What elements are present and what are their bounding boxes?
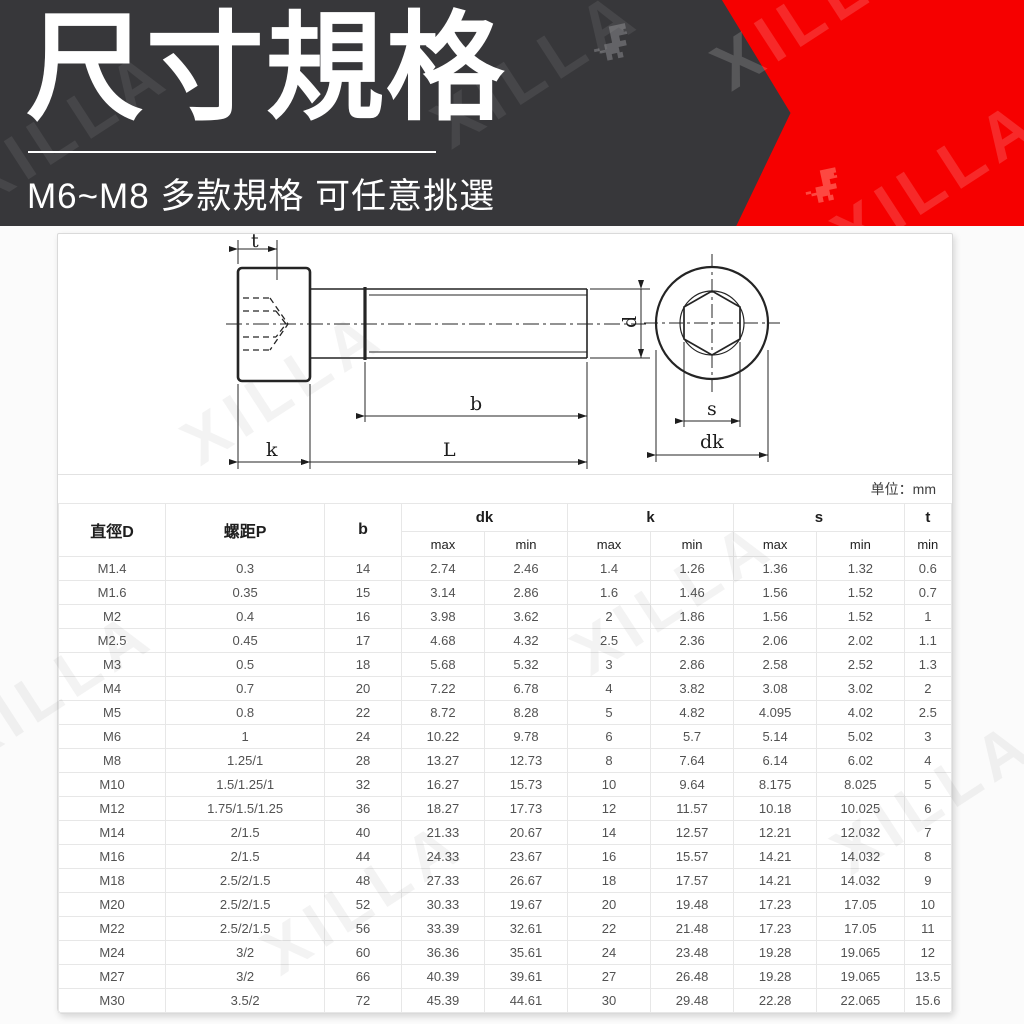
table-row: M20.4163.983.6221.861.561.521 bbox=[59, 605, 952, 629]
table-cell: 14.032 bbox=[817, 845, 905, 869]
table-cell: M1.6 bbox=[59, 581, 166, 605]
table-row: M162/1.54424.3323.671615.5714.2114.0328 bbox=[59, 845, 952, 869]
table-row: M81.25/12813.2712.7387.646.146.024 bbox=[59, 749, 952, 773]
table-row: M1.60.35153.142.861.61.461.561.520.7 bbox=[59, 581, 952, 605]
table-cell: 6.78 bbox=[484, 677, 567, 701]
table-cell: 33.39 bbox=[401, 917, 484, 941]
table-cell: 29.48 bbox=[651, 989, 734, 1013]
table-cell: 13.27 bbox=[401, 749, 484, 773]
table-cell: M3 bbox=[59, 653, 166, 677]
dino-logo-icon bbox=[584, 20, 636, 72]
subheader-t-min: min bbox=[904, 532, 951, 557]
table-cell: 66 bbox=[325, 965, 402, 989]
table-cell: 4.095 bbox=[734, 701, 817, 725]
table-cell: 1.52 bbox=[817, 581, 905, 605]
table-cell: 1.56 bbox=[734, 581, 817, 605]
table-cell: 4 bbox=[904, 749, 951, 773]
table-cell: M5 bbox=[59, 701, 166, 725]
table-cell: 48 bbox=[325, 869, 402, 893]
table-cell: 35.61 bbox=[484, 941, 567, 965]
table-cell: M14 bbox=[59, 821, 166, 845]
table-cell: 3/2 bbox=[166, 941, 325, 965]
table-cell: 5 bbox=[568, 701, 651, 725]
table-cell: 17 bbox=[325, 629, 402, 653]
table-cell: 2.86 bbox=[484, 581, 567, 605]
table-cell: 2/1.5 bbox=[166, 845, 325, 869]
table-cell: 8.72 bbox=[401, 701, 484, 725]
table-cell: 18 bbox=[568, 869, 651, 893]
table-cell: M24 bbox=[59, 941, 166, 965]
table-cell: 4.82 bbox=[651, 701, 734, 725]
label-t: t bbox=[251, 234, 259, 252]
table-cell: 1.36 bbox=[734, 557, 817, 581]
col-header-s: s bbox=[734, 504, 905, 532]
table-cell: 1.75/1.5/1.25 bbox=[166, 797, 325, 821]
table-cell: 44 bbox=[325, 845, 402, 869]
table-cell: 5 bbox=[904, 773, 951, 797]
table-cell: 9.64 bbox=[651, 773, 734, 797]
table-cell: 8.025 bbox=[817, 773, 905, 797]
screw-drawing-svg: t d b k L s dk bbox=[58, 234, 952, 474]
table-cell: 12 bbox=[904, 941, 951, 965]
subheader-k-min: min bbox=[651, 532, 734, 557]
table-cell: 15.73 bbox=[484, 773, 567, 797]
table-cell: 3.82 bbox=[651, 677, 734, 701]
table-row: M30.5185.685.3232.862.582.521.3 bbox=[59, 653, 952, 677]
table-cell: M4 bbox=[59, 677, 166, 701]
table-cell: 24.33 bbox=[401, 845, 484, 869]
table-cell: 20.67 bbox=[484, 821, 567, 845]
table-cell: 0.3 bbox=[166, 557, 325, 581]
table-cell: M20 bbox=[59, 893, 166, 917]
table-cell: 0.7 bbox=[904, 581, 951, 605]
table-row: M222.5/2/1.55633.3932.612221.4817.2317.0… bbox=[59, 917, 952, 941]
table-cell: 10.18 bbox=[734, 797, 817, 821]
page-title: 尺寸規格 bbox=[26, 0, 506, 144]
table-cell: 5.14 bbox=[734, 725, 817, 749]
table-cell: 4.68 bbox=[401, 629, 484, 653]
table-cell: 18 bbox=[325, 653, 402, 677]
table-cell: 3.5/2 bbox=[166, 989, 325, 1013]
label-k: k bbox=[266, 439, 278, 461]
dim-b bbox=[365, 362, 587, 469]
table-cell: 7 bbox=[904, 821, 951, 845]
table-row: M50.8228.728.2854.824.0954.022.5 bbox=[59, 701, 952, 725]
subheader-s-min: min bbox=[817, 532, 905, 557]
table-cell: 56 bbox=[325, 917, 402, 941]
table-cell: 15.57 bbox=[651, 845, 734, 869]
subheader-k-max: max bbox=[568, 532, 651, 557]
technical-drawing: t d b k L s dk bbox=[58, 234, 952, 474]
table-row: M101.5/1.25/13216.2715.73109.648.1758.02… bbox=[59, 773, 952, 797]
table-cell: M27 bbox=[59, 965, 166, 989]
table-cell: 72 bbox=[325, 989, 402, 1013]
unit-row: 单位：mm bbox=[58, 474, 952, 503]
title-underline bbox=[28, 151, 436, 153]
table-cell: 6 bbox=[904, 797, 951, 821]
table-cell: M6 bbox=[59, 725, 166, 749]
table-cell: 12.57 bbox=[651, 821, 734, 845]
table-cell: 15.6 bbox=[904, 989, 951, 1013]
table-cell: 6.02 bbox=[817, 749, 905, 773]
col-header-diameter: 直徑D bbox=[59, 504, 166, 557]
table-cell: 12.032 bbox=[817, 821, 905, 845]
table-cell: 23.67 bbox=[484, 845, 567, 869]
table-cell: 18.27 bbox=[401, 797, 484, 821]
spec-table: 直徑D 螺距P b dk k s t max min max min max m… bbox=[58, 503, 952, 1013]
table-cell: 17.23 bbox=[734, 917, 817, 941]
table-cell: 4 bbox=[568, 677, 651, 701]
table-cell: 0.5 bbox=[166, 653, 325, 677]
label-b: b bbox=[470, 393, 482, 415]
table-cell: 23.48 bbox=[651, 941, 734, 965]
table-cell: 2 bbox=[568, 605, 651, 629]
table-row: M273/26640.3939.612726.4819.2819.06513.5 bbox=[59, 965, 952, 989]
table-cell: M16 bbox=[59, 845, 166, 869]
table-cell: 6.14 bbox=[734, 749, 817, 773]
table-cell: M8 bbox=[59, 749, 166, 773]
table-cell: 1.1 bbox=[904, 629, 951, 653]
table-cell: 2.02 bbox=[817, 629, 905, 653]
table-cell: 28 bbox=[325, 749, 402, 773]
table-cell: 52 bbox=[325, 893, 402, 917]
table-cell: 2.36 bbox=[651, 629, 734, 653]
table-cell: 20 bbox=[568, 893, 651, 917]
table-cell: 1.3 bbox=[904, 653, 951, 677]
table-cell: 22 bbox=[325, 701, 402, 725]
table-cell: 1.86 bbox=[651, 605, 734, 629]
table-cell: 0.45 bbox=[166, 629, 325, 653]
table-cell: 21.33 bbox=[401, 821, 484, 845]
table-cell: 2.74 bbox=[401, 557, 484, 581]
table-cell: 17.05 bbox=[817, 893, 905, 917]
table-cell: 22.28 bbox=[734, 989, 817, 1013]
table-cell: 16 bbox=[325, 605, 402, 629]
table-cell: 3.02 bbox=[817, 677, 905, 701]
col-header-b: b bbox=[325, 504, 402, 557]
label-L: L bbox=[443, 439, 456, 461]
spec-table-header: 直徑D 螺距P b dk k s t max min max min max m… bbox=[59, 504, 952, 557]
table-cell: 11.57 bbox=[651, 797, 734, 821]
table-cell: 3.14 bbox=[401, 581, 484, 605]
table-row: M303.5/27245.3944.613029.4822.2822.06515… bbox=[59, 989, 952, 1013]
table-cell: 1.32 bbox=[817, 557, 905, 581]
table-cell: 14 bbox=[568, 821, 651, 845]
table-cell: 1.46 bbox=[651, 581, 734, 605]
page: XILLA XILLA XILLA XILLA 尺寸規格 M6~M8 多款規格 … bbox=[0, 0, 1024, 1024]
table-row: M202.5/2/1.55230.3319.672019.4817.2317.0… bbox=[59, 893, 952, 917]
table-cell: 19.28 bbox=[734, 965, 817, 989]
table-cell: 12.73 bbox=[484, 749, 567, 773]
table-cell: 0.6 bbox=[904, 557, 951, 581]
table-cell: 12 bbox=[568, 797, 651, 821]
table-cell: 0.35 bbox=[166, 581, 325, 605]
table-cell: 3.08 bbox=[734, 677, 817, 701]
table-row: M2.50.45174.684.322.52.362.062.021.1 bbox=[59, 629, 952, 653]
table-cell: 9.78 bbox=[484, 725, 567, 749]
table-cell: 8 bbox=[568, 749, 651, 773]
table-cell: 1.52 bbox=[817, 605, 905, 629]
table-row: M243/26036.3635.612423.4819.2819.06512 bbox=[59, 941, 952, 965]
table-cell: 5.7 bbox=[651, 725, 734, 749]
table-cell: 4.02 bbox=[817, 701, 905, 725]
table-cell: 3.62 bbox=[484, 605, 567, 629]
table-cell: 2.06 bbox=[734, 629, 817, 653]
dim-k-L bbox=[238, 384, 587, 469]
table-cell: 10 bbox=[904, 893, 951, 917]
table-cell: 14.21 bbox=[734, 845, 817, 869]
table-cell: 19.065 bbox=[817, 941, 905, 965]
table-cell: 2.5 bbox=[904, 701, 951, 725]
table-cell: 2.5/2/1.5 bbox=[166, 917, 325, 941]
table-cell: 40 bbox=[325, 821, 402, 845]
table-cell: 45.39 bbox=[401, 989, 484, 1013]
table-row: M40.7207.226.7843.823.083.022 bbox=[59, 677, 952, 701]
table-cell: 7.22 bbox=[401, 677, 484, 701]
table-cell: 17.73 bbox=[484, 797, 567, 821]
subheader-dk-max: max bbox=[401, 532, 484, 557]
table-cell: 9 bbox=[904, 869, 951, 893]
table-cell: 22 bbox=[568, 917, 651, 941]
table-cell: M12 bbox=[59, 797, 166, 821]
table-cell: 7.64 bbox=[651, 749, 734, 773]
table-row: M182.5/2/1.54827.3326.671817.5714.2114.0… bbox=[59, 869, 952, 893]
table-cell: 2.86 bbox=[651, 653, 734, 677]
table-cell: 0.4 bbox=[166, 605, 325, 629]
unit-note: 单位：mm bbox=[871, 481, 936, 497]
table-cell: 1.56 bbox=[734, 605, 817, 629]
table-cell: 2.5/2/1.5 bbox=[166, 893, 325, 917]
table-cell: 10.22 bbox=[401, 725, 484, 749]
table-cell: 24 bbox=[568, 941, 651, 965]
table-cell: M22 bbox=[59, 917, 166, 941]
col-header-t: t bbox=[904, 504, 951, 532]
table-cell: 40.39 bbox=[401, 965, 484, 989]
table-cell: 3 bbox=[568, 653, 651, 677]
table-cell: 19.67 bbox=[484, 893, 567, 917]
table-cell: 1 bbox=[166, 725, 325, 749]
table-cell: 5.68 bbox=[401, 653, 484, 677]
table-cell: 60 bbox=[325, 941, 402, 965]
col-header-dk: dk bbox=[401, 504, 567, 532]
table-cell: 14.21 bbox=[734, 869, 817, 893]
table-cell: M2 bbox=[59, 605, 166, 629]
page-subtitle: M6~M8 多款規格 可任意挑選 bbox=[27, 168, 495, 219]
table-cell: 19.48 bbox=[651, 893, 734, 917]
table-cell: 17.05 bbox=[817, 917, 905, 941]
table-cell: 2.58 bbox=[734, 653, 817, 677]
table-cell: M2.5 bbox=[59, 629, 166, 653]
table-cell: 6 bbox=[568, 725, 651, 749]
table-cell: 44.61 bbox=[484, 989, 567, 1013]
table-cell: 3.98 bbox=[401, 605, 484, 629]
table-cell: 30.33 bbox=[401, 893, 484, 917]
label-d: d bbox=[619, 316, 641, 328]
table-cell: 27.33 bbox=[401, 869, 484, 893]
table-cell: 16 bbox=[568, 845, 651, 869]
table-cell: 5.02 bbox=[817, 725, 905, 749]
table-cell: M1.4 bbox=[59, 557, 166, 581]
table-cell: 0.7 bbox=[166, 677, 325, 701]
table-cell: 13.5 bbox=[904, 965, 951, 989]
table-cell: 3/2 bbox=[166, 965, 325, 989]
table-cell: 2.5/2/1.5 bbox=[166, 869, 325, 893]
table-cell: 16.27 bbox=[401, 773, 484, 797]
table-cell: 2.52 bbox=[817, 653, 905, 677]
table-cell: 20 bbox=[325, 677, 402, 701]
table-cell: 17.23 bbox=[734, 893, 817, 917]
table-cell: 2.5 bbox=[568, 629, 651, 653]
table-cell: 39.61 bbox=[484, 965, 567, 989]
table-cell: M10 bbox=[59, 773, 166, 797]
table-cell: 2/1.5 bbox=[166, 821, 325, 845]
table-cell: M18 bbox=[59, 869, 166, 893]
table-cell: 14.032 bbox=[817, 869, 905, 893]
table-cell: 10.025 bbox=[817, 797, 905, 821]
table-cell: 5.32 bbox=[484, 653, 567, 677]
table-cell: 21.48 bbox=[651, 917, 734, 941]
table-cell: 11 bbox=[904, 917, 951, 941]
table-cell: 1.6 bbox=[568, 581, 651, 605]
table-cell: 2.46 bbox=[484, 557, 567, 581]
table-cell: 12.21 bbox=[734, 821, 817, 845]
table-cell: 8 bbox=[904, 845, 951, 869]
table-cell: 2 bbox=[904, 677, 951, 701]
table-cell: 1 bbox=[904, 605, 951, 629]
subheader-dk-min: min bbox=[484, 532, 567, 557]
table-cell: 0.8 bbox=[166, 701, 325, 725]
table-cell: M30 bbox=[59, 989, 166, 1013]
spec-table-body: M1.40.3142.742.461.41.261.361.320.6M1.60… bbox=[59, 557, 952, 1013]
table-cell: 15 bbox=[325, 581, 402, 605]
table-cell: 1.26 bbox=[651, 557, 734, 581]
table-cell: 27 bbox=[568, 965, 651, 989]
table-cell: 1.25/1 bbox=[166, 749, 325, 773]
table-cell: 19.065 bbox=[817, 965, 905, 989]
label-dk: dk bbox=[700, 431, 724, 453]
subheader-s-max: max bbox=[734, 532, 817, 557]
table-cell: 32.61 bbox=[484, 917, 567, 941]
table-cell: 3 bbox=[904, 725, 951, 749]
table-row: M1.40.3142.742.461.41.261.361.320.6 bbox=[59, 557, 952, 581]
table-cell: 8.175 bbox=[734, 773, 817, 797]
table-cell: 26.67 bbox=[484, 869, 567, 893]
table-cell: 24 bbox=[325, 725, 402, 749]
table-cell: 26.48 bbox=[651, 965, 734, 989]
table-cell: 14 bbox=[325, 557, 402, 581]
table-cell: 17.57 bbox=[651, 869, 734, 893]
table-cell: 1.5/1.25/1 bbox=[166, 773, 325, 797]
table-cell: 36 bbox=[325, 797, 402, 821]
table-cell: 32 bbox=[325, 773, 402, 797]
spec-panel: t d b k L s dk 单位：mm 直徑D bbox=[57, 233, 953, 1014]
col-header-k: k bbox=[568, 504, 734, 532]
table-cell: 1.4 bbox=[568, 557, 651, 581]
table-cell: 8.28 bbox=[484, 701, 567, 725]
header-banner: XILLA XILLA XILLA XILLA 尺寸規格 M6~M8 多款規格 … bbox=[0, 0, 1024, 226]
table-cell: 4.32 bbox=[484, 629, 567, 653]
table-cell: 36.36 bbox=[401, 941, 484, 965]
table-row: M121.75/1.5/1.253618.2717.731211.5710.18… bbox=[59, 797, 952, 821]
table-cell: 10 bbox=[568, 773, 651, 797]
table-cell: 19.28 bbox=[734, 941, 817, 965]
label-s: s bbox=[707, 398, 717, 420]
table-row: M142/1.54021.3320.671412.5712.2112.0327 bbox=[59, 821, 952, 845]
table-cell: 30 bbox=[568, 989, 651, 1013]
table-cell: 22.065 bbox=[817, 989, 905, 1013]
table-row: M612410.229.7865.75.145.023 bbox=[59, 725, 952, 749]
col-header-pitch: 螺距P bbox=[166, 504, 325, 557]
